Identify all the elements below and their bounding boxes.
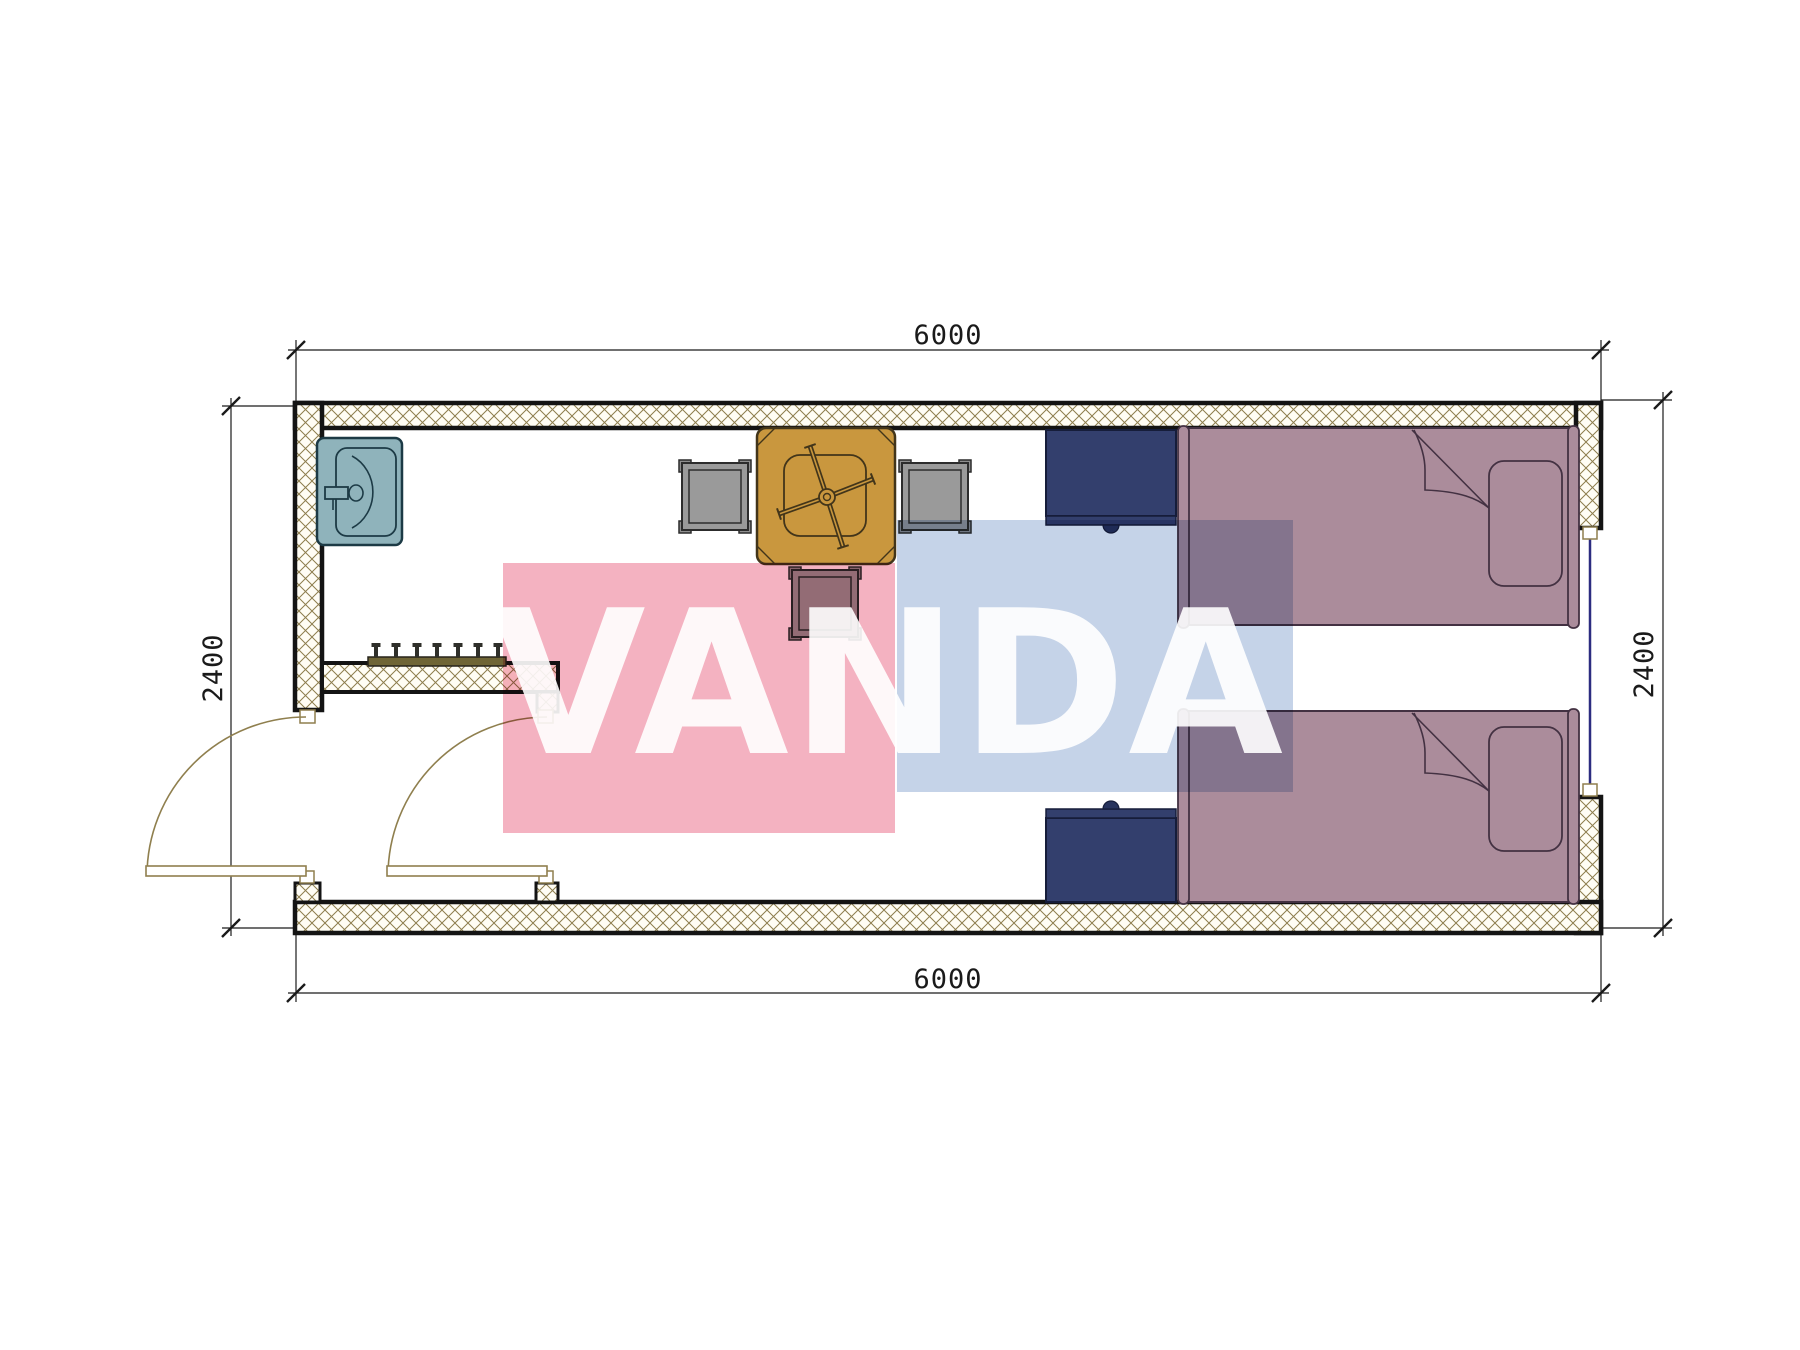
sink-faucet	[325, 487, 348, 499]
pillow	[1489, 461, 1562, 586]
pillow	[1489, 727, 1562, 851]
floor-plan-drawing: 6000 6000 2400 2400	[0, 0, 1800, 1350]
door-jamb-block-left	[295, 883, 320, 902]
table	[757, 428, 895, 564]
sink	[317, 438, 402, 545]
nightstand-top	[1046, 430, 1176, 533]
door-jamb-block-middle	[536, 883, 558, 902]
door-leaf	[387, 866, 547, 876]
dimension-left	[222, 397, 295, 937]
headboard	[1568, 709, 1579, 904]
wall-bottom	[295, 902, 1601, 933]
watermark-text: VANDA	[491, 568, 1285, 801]
nightstand-bottom	[1046, 801, 1176, 902]
chair-left	[679, 460, 751, 533]
door-swing-arc	[147, 717, 306, 876]
door-exterior	[146, 717, 306, 876]
dim-label-top: 6000	[913, 320, 982, 351]
dim-label-bottom: 6000	[913, 964, 982, 995]
dim-label-right: 2400	[1629, 629, 1660, 698]
wall-top	[295, 403, 1601, 428]
headboard	[1568, 426, 1579, 628]
door-leaf	[146, 866, 306, 876]
dim-label-left: 2400	[198, 633, 229, 702]
